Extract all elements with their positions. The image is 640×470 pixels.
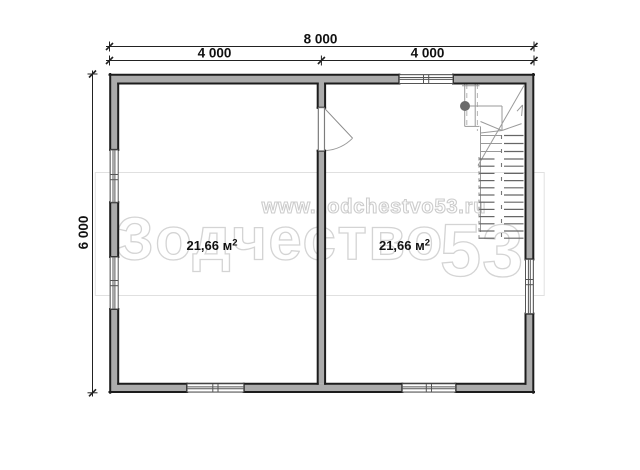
svg-text:53: 53: [440, 209, 524, 292]
svg-text:4 000: 4 000: [411, 46, 445, 61]
svg-text:21,66 м2: 21,66 м2: [186, 237, 237, 253]
svg-text:6 000: 6 000: [76, 216, 91, 250]
svg-text:4 000: 4 000: [198, 46, 232, 61]
svg-text:8 000: 8 000: [304, 31, 338, 46]
svg-text:21,66 м2: 21,66 м2: [379, 238, 430, 254]
